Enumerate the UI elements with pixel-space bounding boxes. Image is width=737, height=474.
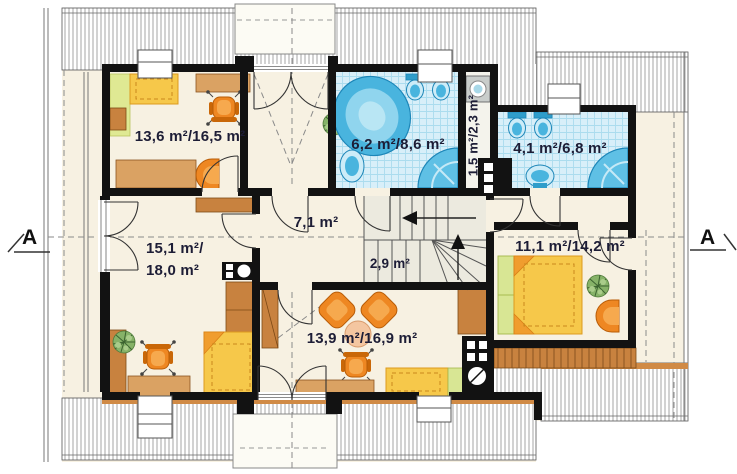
balcony-bottom bbox=[233, 414, 337, 468]
room-area-label-small-bathroom: 4,1 m²/6,8 m² bbox=[500, 141, 620, 158]
room-area-label-main-bathroom: 6,2 m²/8,6 m² bbox=[338, 137, 458, 154]
floor-plan-page: 13,6 m²/16,5 m² 6,2 m²/8,6 m² 1,5 m²/2,3… bbox=[0, 0, 737, 474]
room-area-label-staircase: 2,9 m² bbox=[360, 257, 420, 272]
balcony-top bbox=[235, 4, 335, 54]
room-area-label-top-left-room: 13,6 m²/16,5 m² bbox=[128, 129, 252, 146]
room-area-label-left-room-line2: 18,0 m² bbox=[146, 263, 226, 280]
room-area-label-utility-closet: 1,5 m²/2,3 m² bbox=[467, 81, 482, 191]
room-area-label-right-bedroom: 11,1 m²/14,2 m² bbox=[508, 239, 632, 256]
room-area-label-bottom-room: 13,9 m²/16,9 m² bbox=[298, 331, 426, 348]
section-marker-a-right: A bbox=[700, 226, 715, 250]
staircase bbox=[364, 196, 486, 290]
floor-plan-drawing bbox=[0, 0, 737, 474]
section-marker-a-left: A bbox=[22, 226, 37, 250]
room-area-label-left-room-line1: 15,1 m²/ bbox=[146, 241, 226, 258]
room-area-label-hall: 7,1 m² bbox=[284, 215, 348, 232]
